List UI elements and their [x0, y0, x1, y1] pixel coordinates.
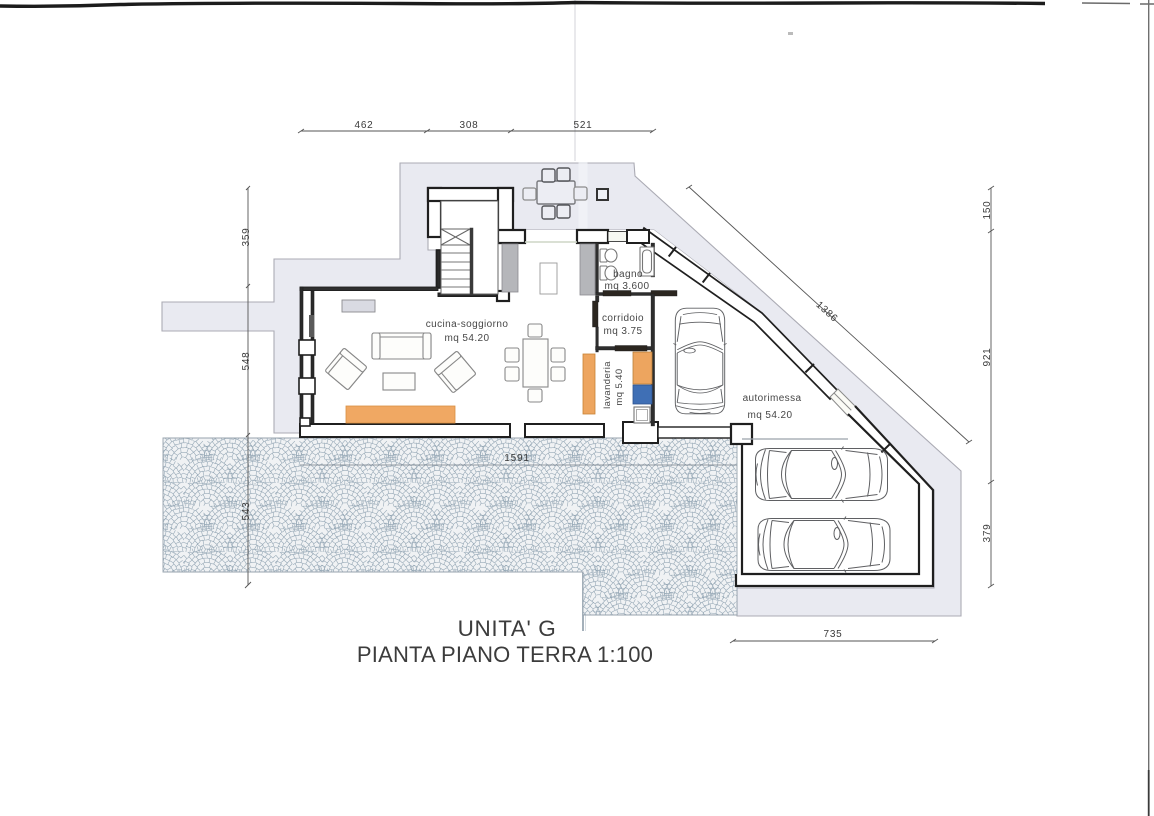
svg-text:autorimessa: autorimessa: [743, 393, 802, 404]
svg-text:mq 3.600: mq 3.600: [605, 281, 650, 292]
svg-text:921: 921: [982, 347, 993, 366]
svg-text:379: 379: [982, 523, 993, 542]
svg-text:359: 359: [241, 227, 252, 246]
svg-text:462: 462: [354, 120, 373, 131]
svg-text:lavanderia: lavanderia: [602, 361, 613, 409]
svg-text:bagno: bagno: [613, 269, 643, 280]
svg-text:UNITA' G: UNITA' G: [458, 616, 557, 641]
svg-text:1591: 1591: [504, 453, 529, 464]
svg-text:mq 3.75: mq 3.75: [604, 326, 643, 337]
svg-text:mq 54.20: mq 54.20: [445, 333, 490, 344]
svg-text:corridoio: corridoio: [602, 313, 644, 324]
svg-text:mq 5.40: mq 5.40: [614, 368, 625, 405]
svg-text:mq 54.20: mq 54.20: [748, 410, 793, 421]
svg-text:PIANTA PIANO TERRA 1:100: PIANTA PIANO TERRA 1:100: [357, 642, 653, 667]
svg-text:308: 308: [459, 120, 478, 131]
svg-text:150: 150: [982, 200, 993, 219]
svg-text:543: 543: [241, 501, 252, 520]
svg-text:735: 735: [823, 629, 842, 640]
svg-text:cucina-soggiorno: cucina-soggiorno: [426, 319, 509, 330]
svg-text:548: 548: [241, 351, 252, 370]
svg-text:521: 521: [573, 120, 592, 131]
